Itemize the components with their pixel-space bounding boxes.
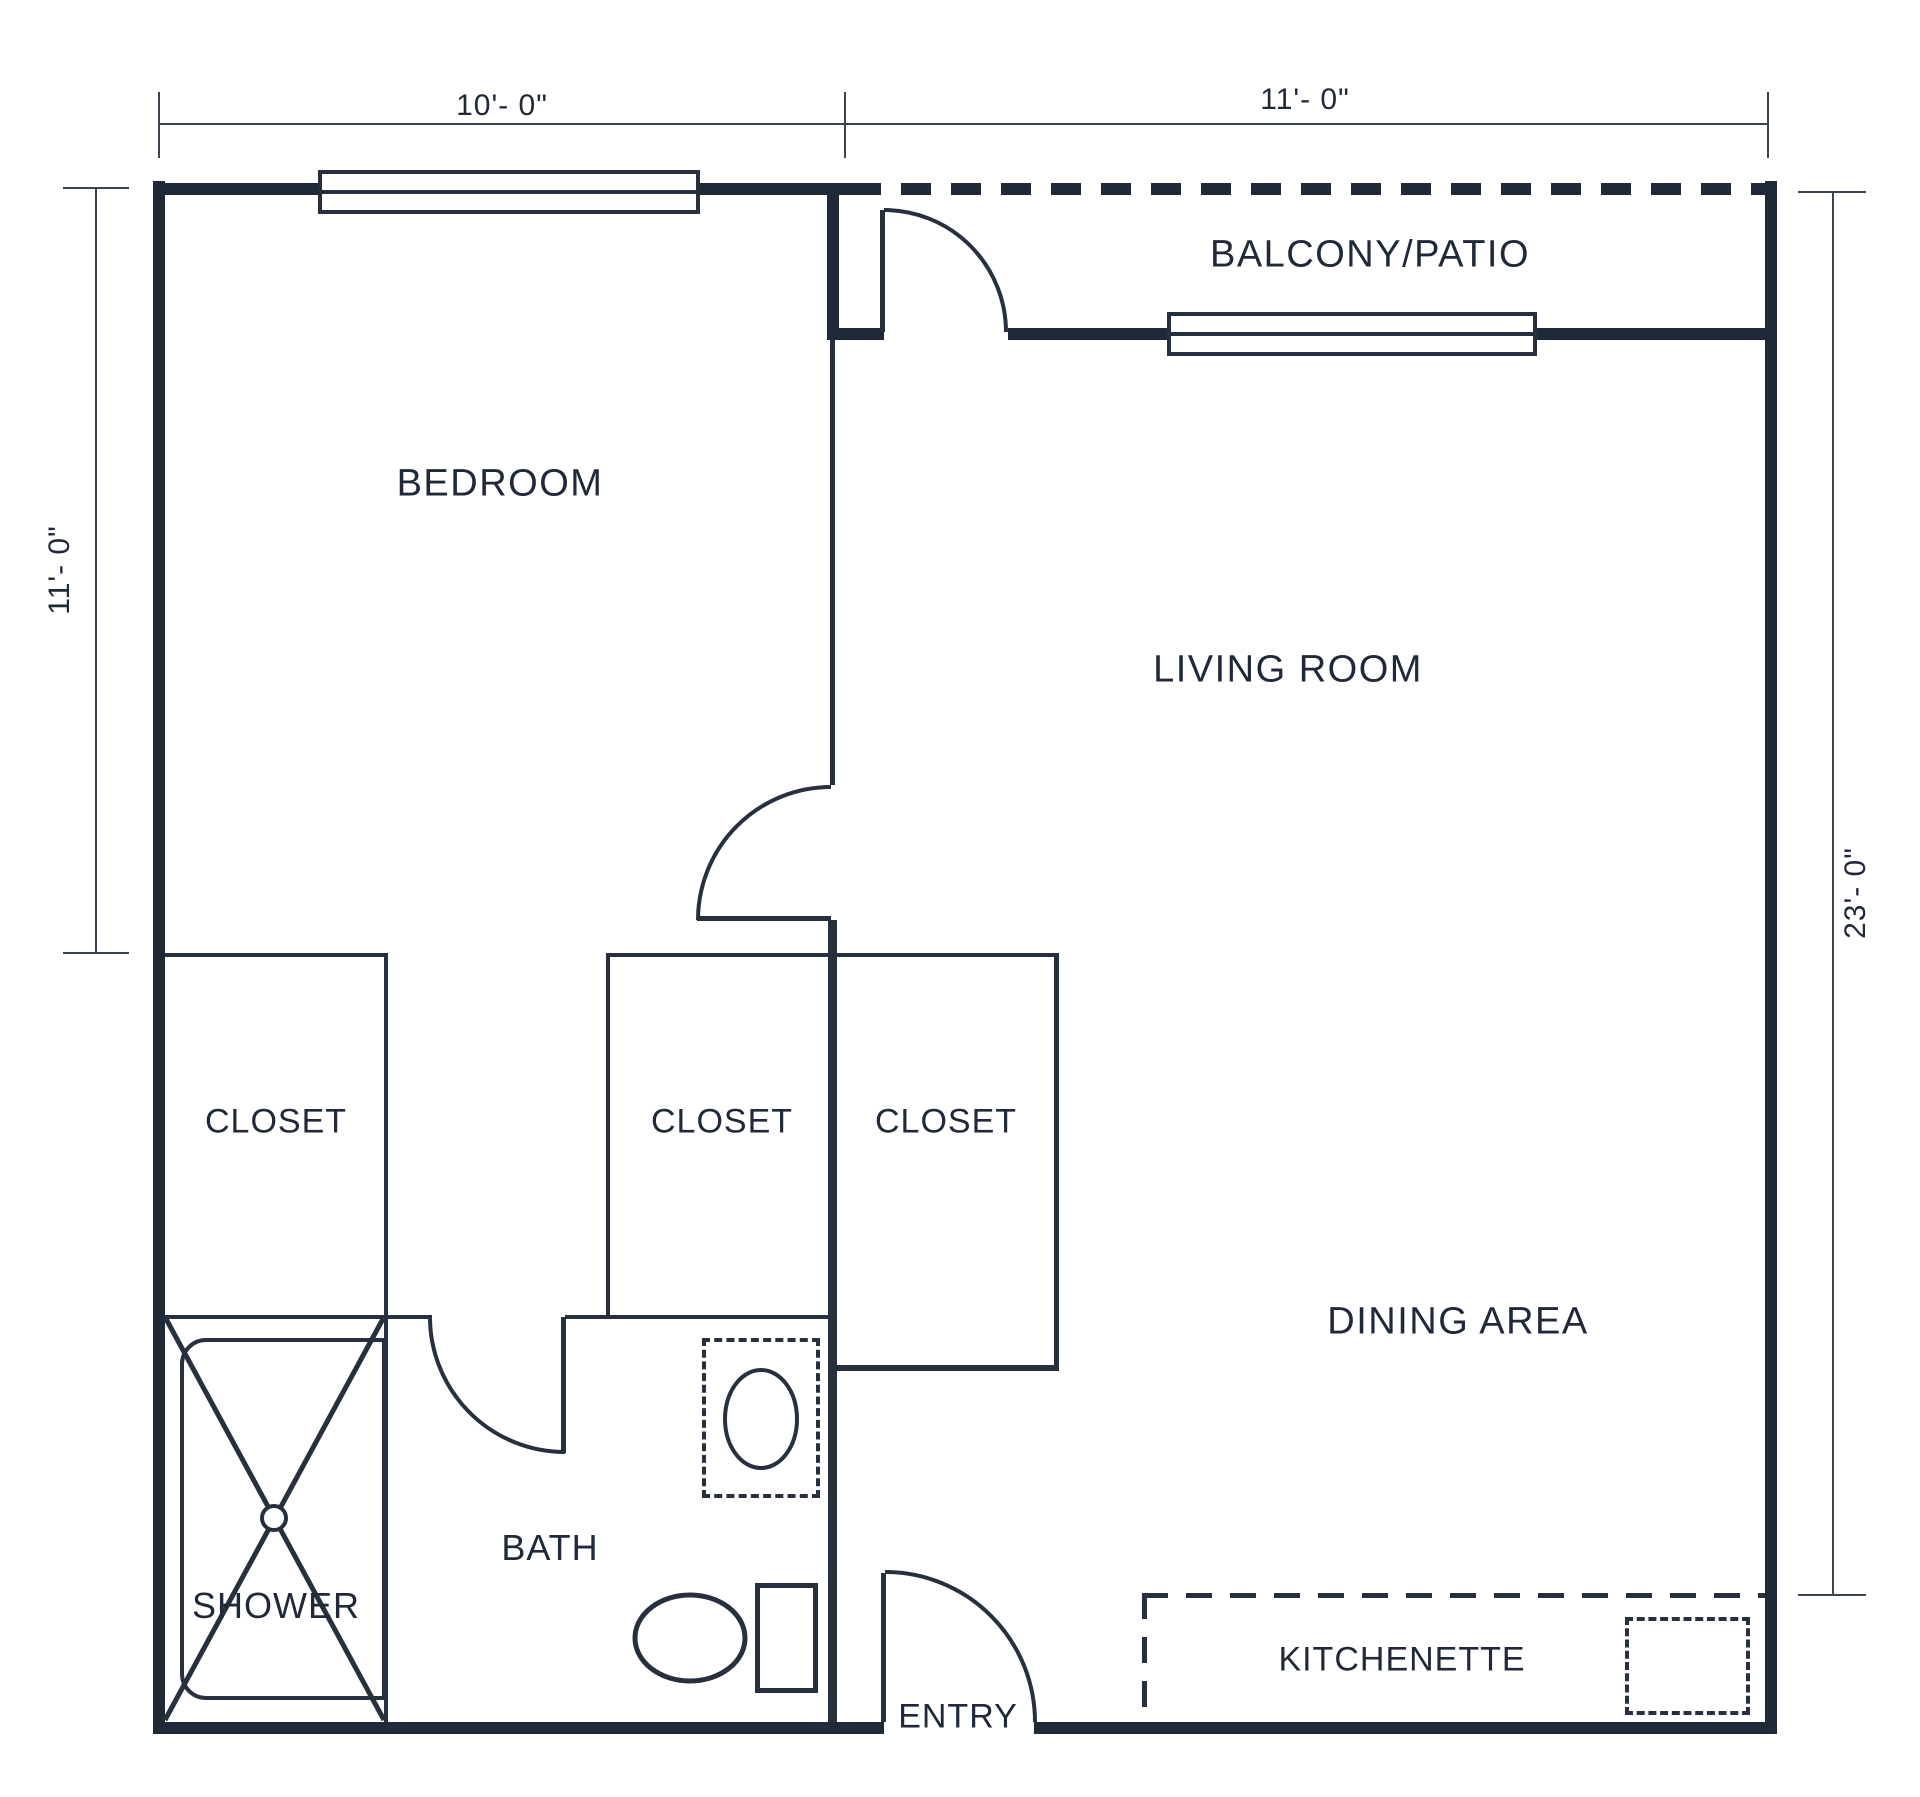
dim-top-line [159, 123, 1768, 125]
plan-curves [0, 0, 1920, 1797]
room-label-shower: SHOWER [192, 1585, 360, 1627]
bedroom-door-arc [698, 787, 831, 920]
shower-drain [262, 1506, 286, 1530]
dim-left-tick-bottom [63, 952, 129, 954]
dim-label-right: 23'- 0" [1839, 847, 1873, 939]
balcony-door-arc [884, 210, 1006, 332]
room-label-dining-area: DINING AREA [1327, 1301, 1588, 1344]
dim-label-left: 11'- 0" [43, 525, 77, 615]
dim-left-tick-top [63, 187, 129, 189]
room-label-kitchenette: KITCHENETTE [1278, 1641, 1525, 1680]
room-label-bath: BATH [501, 1527, 598, 1569]
dim-top-tick-left [158, 92, 160, 158]
room-label-closet-left: CLOSET [205, 1103, 347, 1142]
bath-door-arc [430, 1315, 565, 1452]
bath-sink [635, 1595, 745, 1681]
room-label-closet-middle: CLOSET [651, 1103, 793, 1142]
room-label-bedroom: BEDROOM [397, 463, 604, 506]
room-label-balcony-patio: BALCONY/PATIO [1210, 234, 1530, 277]
dim-top-tick-mid [844, 92, 846, 158]
dim-label-top-left: 10'- 0" [456, 89, 548, 123]
room-label-entry: ENTRY [898, 1698, 1018, 1737]
room-label-closet-right: CLOSET [875, 1103, 1017, 1142]
room-label-living-room: LIVING ROOM [1153, 649, 1423, 692]
dim-label-top-right: 11'- 0" [1260, 83, 1350, 117]
dim-right-tick-bottom [1798, 1594, 1866, 1596]
floor-plan: 10'- 0" 11'- 0" 11'- 0" 23'- 0" BEDROOM … [0, 0, 1920, 1797]
dim-top-tick-right [1767, 92, 1769, 158]
dim-left-line [95, 188, 97, 953]
dim-right-tick-top [1798, 191, 1866, 193]
dim-right-line [1832, 192, 1834, 1595]
toilet-bowl [725, 1370, 797, 1468]
